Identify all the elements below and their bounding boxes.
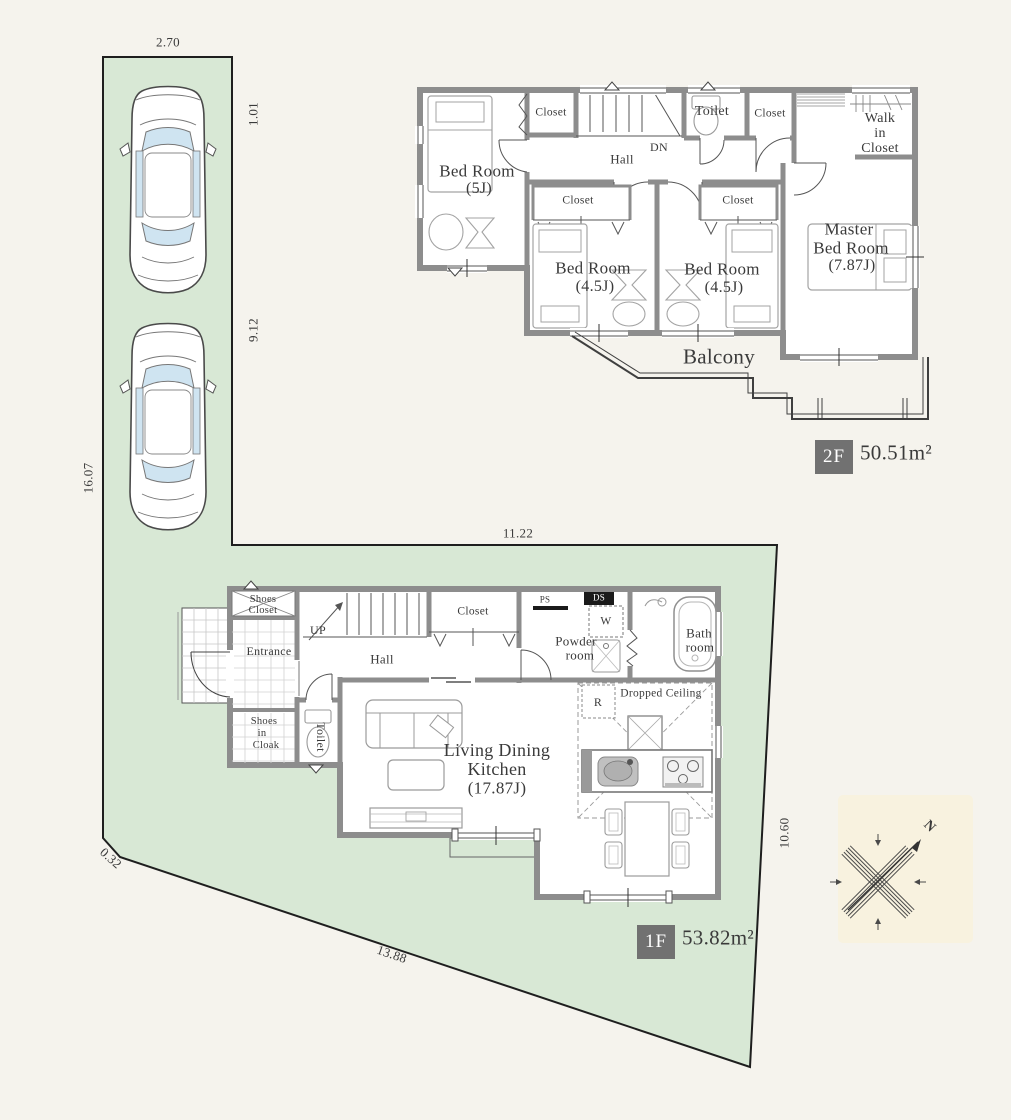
washer-label: W — [600, 616, 611, 628]
compass-rose — [830, 795, 973, 943]
room-label-toilet-2f: Toilet — [695, 105, 729, 119]
parking-car-2 — [120, 324, 216, 530]
floor-plan-page: 2.70 1.01 9.12 16.07 11.22 10.60 13.88 0… — [0, 0, 1011, 1120]
stairs-up-label: UP — [310, 624, 326, 636]
room-label-bedroom-b: Bed Room — [684, 261, 760, 278]
dim-right-upper: 1.01 — [247, 102, 260, 126]
room-label-hall-2f: Hall — [610, 153, 634, 166]
room-label-master-1: Master — [824, 221, 873, 238]
floor2-badge: 2F — [815, 440, 853, 474]
room-label-bedroom-a: Bed Room — [555, 260, 631, 277]
dim-right-lower: 9.12 — [247, 318, 260, 342]
room-label-cloak-2: in — [258, 729, 267, 740]
room-label-cloak-1: Shoes — [251, 717, 278, 728]
room-label-closet-a: Closet — [562, 195, 593, 207]
room-label-hall-1f: Hall — [370, 653, 394, 666]
room-label-toilet-1f: Toilet — [315, 722, 327, 752]
room-label-powder-2: room — [566, 649, 595, 662]
room-label-closet-b: Closet — [722, 195, 753, 207]
room-label-ldk-1: Living Dining — [444, 741, 550, 759]
room-label-wic-2: in — [874, 127, 886, 141]
room-label-entrance: Entrance — [246, 645, 291, 657]
room-label-shoes-closet-1: Shoes — [250, 595, 277, 606]
room-label-closet-top-left: Closet — [535, 107, 566, 119]
dim-right: 10.60 — [778, 818, 791, 849]
room-label-powder-1: Powder — [555, 635, 597, 648]
room-label-closet-1f: Closet — [457, 606, 488, 618]
room-label-master-2: Bed Room — [813, 240, 889, 257]
dropped-ceiling-label: Dropped Ceiling — [620, 688, 701, 700]
stairs-down-label: DN — [650, 141, 668, 153]
floor2-badge-text: 2F — [823, 446, 845, 468]
room-label-closet-top-right: Closet — [754, 108, 785, 120]
room-label-wic-3: Closet — [861, 142, 899, 156]
room-label-cloak-3: Cloak — [253, 741, 280, 752]
parking-car-1 — [120, 87, 216, 293]
dim-width: 11.22 — [503, 527, 533, 540]
ds-label: DS — [593, 594, 605, 603]
room-size-bedroom5: (5J) — [466, 181, 492, 197]
room-label-wic-1: Walk — [865, 112, 895, 126]
room-size-bedroom-b: (4.5J) — [705, 280, 744, 296]
dim-left: 16.07 — [82, 463, 95, 494]
room-label-bath-2: room — [686, 641, 715, 654]
room-label-shoes-closet-2: Closet — [249, 606, 278, 617]
room-label-ldk-2: Kitchen — [467, 760, 526, 778]
floor1-badge-text: 1F — [645, 931, 667, 953]
ps-label: PS — [540, 596, 551, 605]
room-size-ldk: (17.87J) — [468, 780, 527, 797]
dim-top: 2.70 — [156, 36, 180, 49]
floor1-area: 53.82m² — [682, 928, 754, 949]
floor1-badge: 1F — [637, 925, 675, 959]
floor2-area: 50.51m² — [860, 443, 932, 464]
room-size-master: (7.87J) — [829, 258, 876, 274]
fridge-label: R — [594, 696, 602, 708]
room-size-bedroom-a: (4.5J) — [576, 279, 615, 295]
balcony-label: Balcony — [683, 347, 755, 368]
room-label-bedroom5: Bed Room — [439, 163, 515, 180]
room-label-bath-1: Bath — [686, 627, 712, 640]
